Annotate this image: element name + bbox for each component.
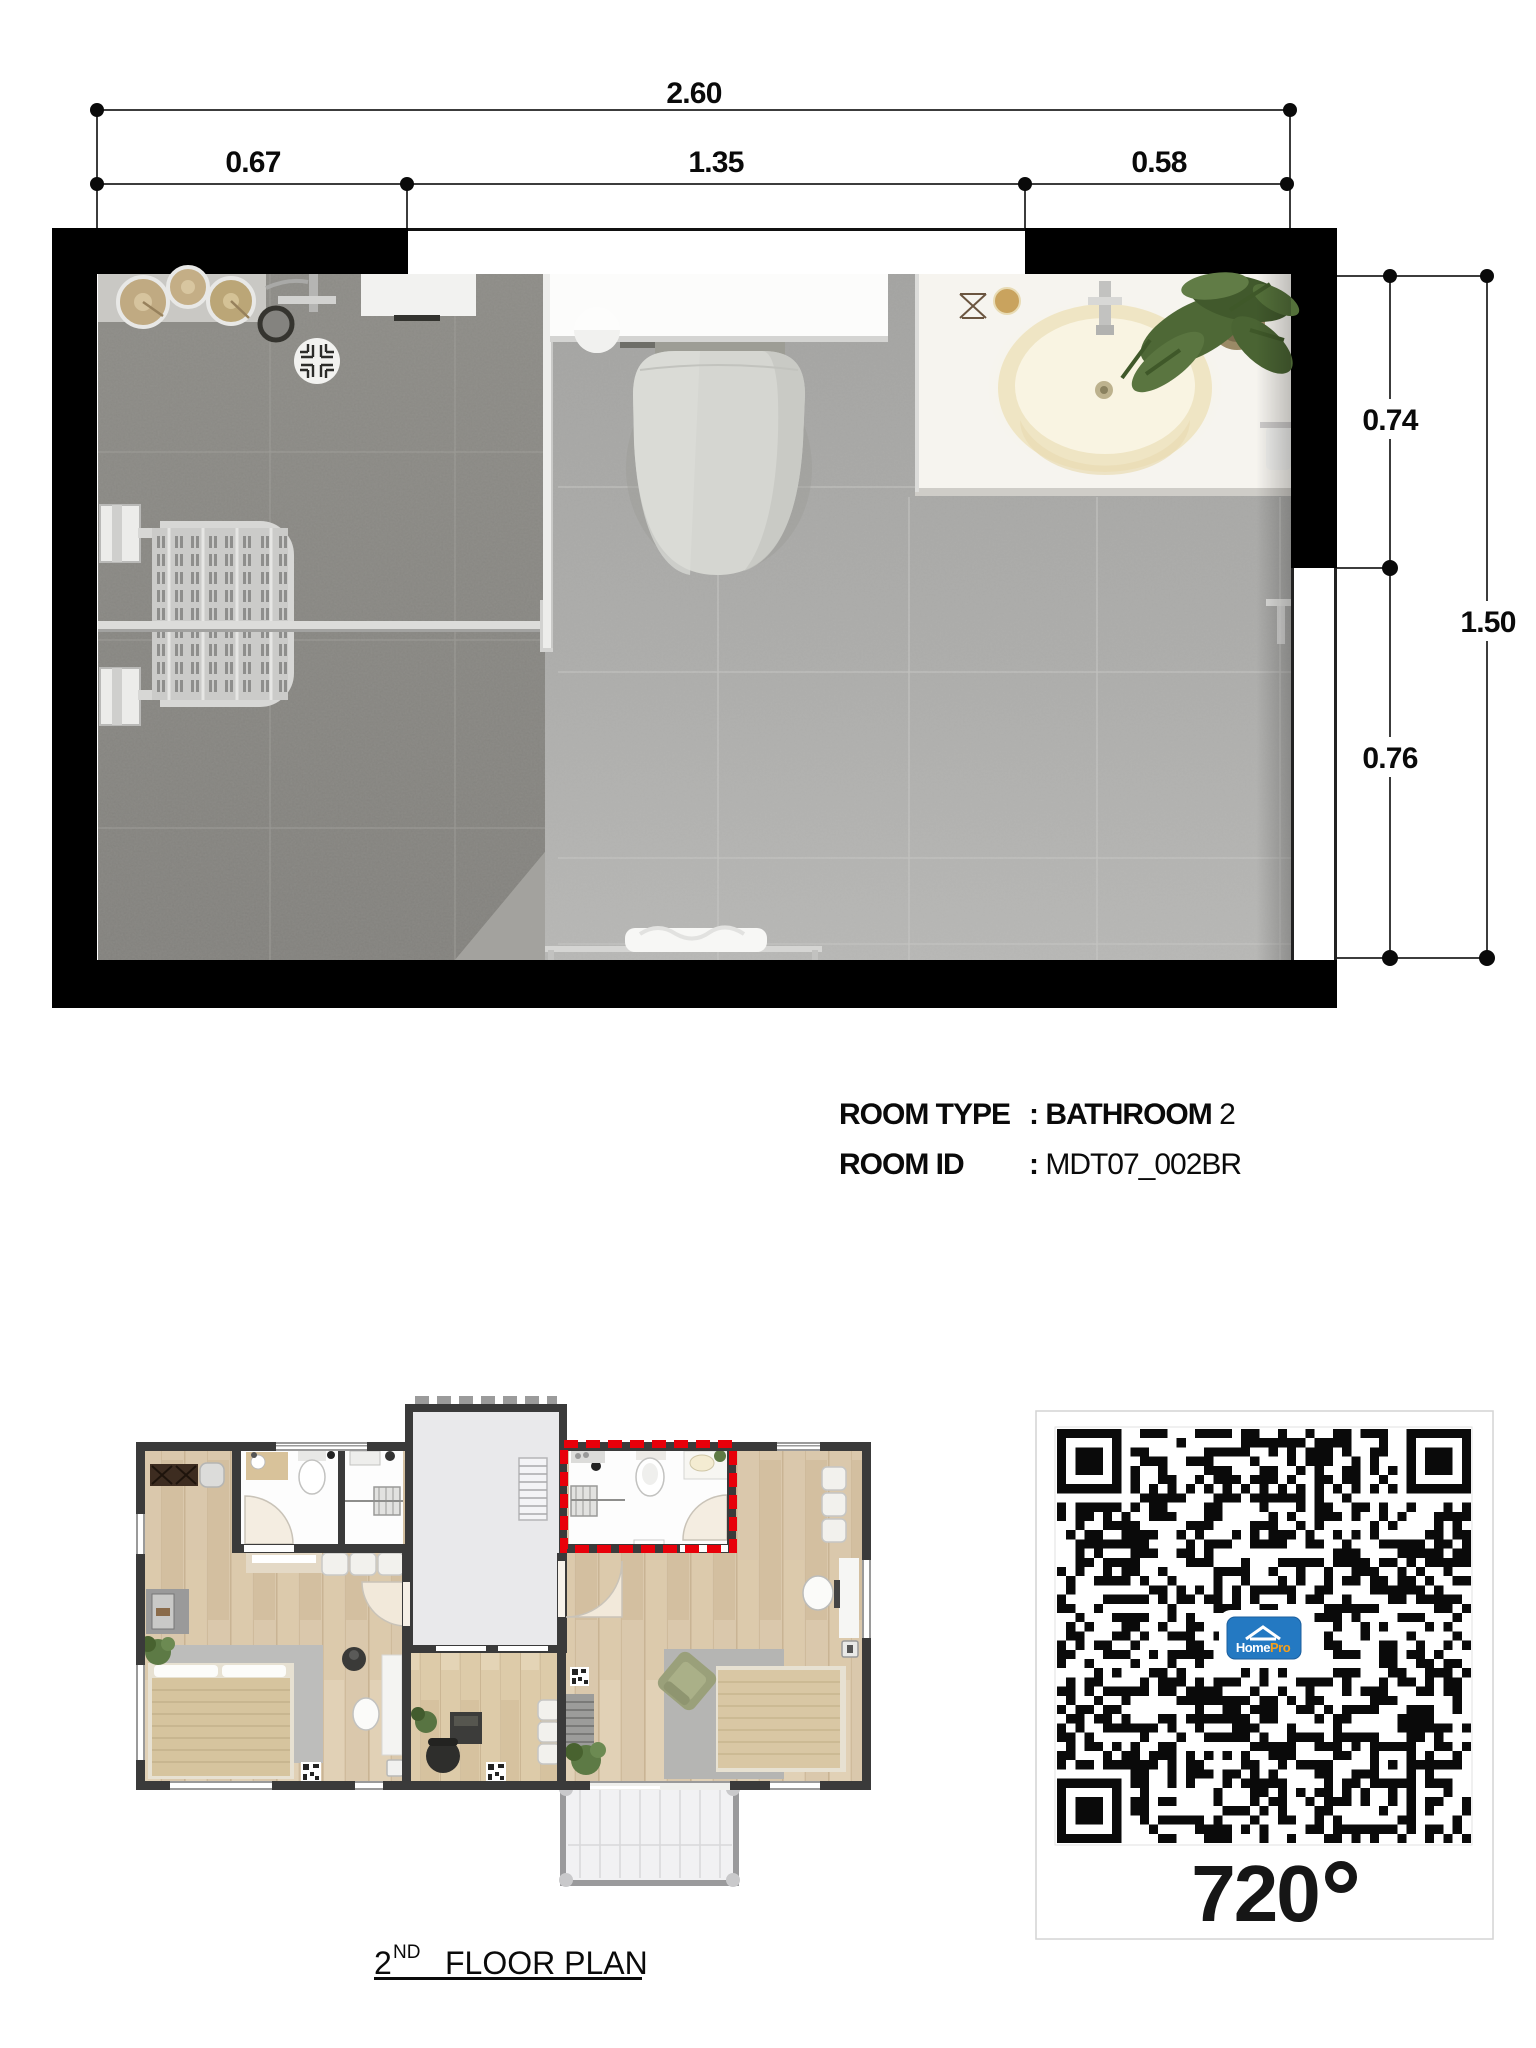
svg-text:ROOM ID: ROOM ID [839,1148,964,1181]
svg-text:1.35: 1.35 [688,146,743,179]
svg-text:2.60: 2.60 [666,77,721,110]
svg-text:ROOM TYPE: ROOM TYPE [839,1098,1010,1131]
svg-text:0.74: 0.74 [1362,404,1418,437]
svg-text:0.58: 0.58 [1131,146,1186,179]
svg-text:1.50: 1.50 [1460,606,1515,639]
svg-text:FLOOR PLAN: FLOOR PLAN [445,1945,648,1981]
svg-text:720: 720 [1191,1849,1318,1938]
svg-text:: MDT07_002BR: : MDT07_002BR [1029,1148,1241,1181]
svg-text:HomePro: HomePro [1236,1640,1291,1655]
svg-text:0.67: 0.67 [225,146,280,179]
svg-text:0.76: 0.76 [1362,742,1417,775]
svg-text:2: 2 [374,1945,392,1981]
svg-text:: BATHROOM 2: : BATHROOM 2 [1029,1098,1235,1131]
svg-text:ND: ND [393,1942,420,1963]
